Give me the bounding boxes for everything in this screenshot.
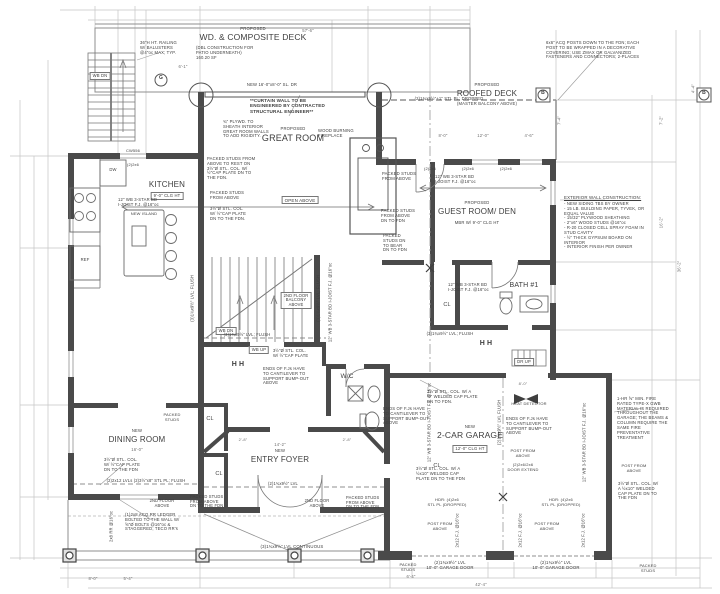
heat-detector-icon [514, 394, 538, 404]
bath1-fixtures [500, 292, 548, 314]
grid-bubbles [155, 74, 711, 102]
foyer-splay-walls [204, 431, 384, 452]
wc-fixtures [348, 386, 380, 430]
refrigerator [70, 246, 100, 280]
curtain-wall [189, 83, 391, 107]
kitchen-fixtures [70, 160, 177, 280]
toilet-tank [500, 292, 512, 298]
island-sink [132, 226, 146, 246]
chair [166, 251, 177, 262]
leader-lines [100, 52, 643, 520]
toilet [500, 298, 512, 314]
chair [166, 269, 177, 280]
sink [526, 299, 542, 309]
deck-outlines [68, 24, 594, 560]
sink [368, 386, 380, 402]
kitchen-island [124, 210, 164, 276]
fireplace [350, 138, 396, 234]
garage-house-steps [512, 350, 546, 366]
interior-stair [206, 257, 312, 342]
dishwasher [100, 160, 126, 186]
vanity [520, 296, 548, 312]
floor-plan-canvas: PROPOSEDWD. & COMPOSITE DECK(DBL CONSTRU… [0, 0, 720, 594]
walls [68, 92, 612, 560]
joist-span-arrows [122, 185, 546, 210]
chair [166, 233, 177, 244]
floor-plan-linework [0, 0, 720, 594]
chair [166, 215, 177, 226]
stove [70, 188, 100, 232]
